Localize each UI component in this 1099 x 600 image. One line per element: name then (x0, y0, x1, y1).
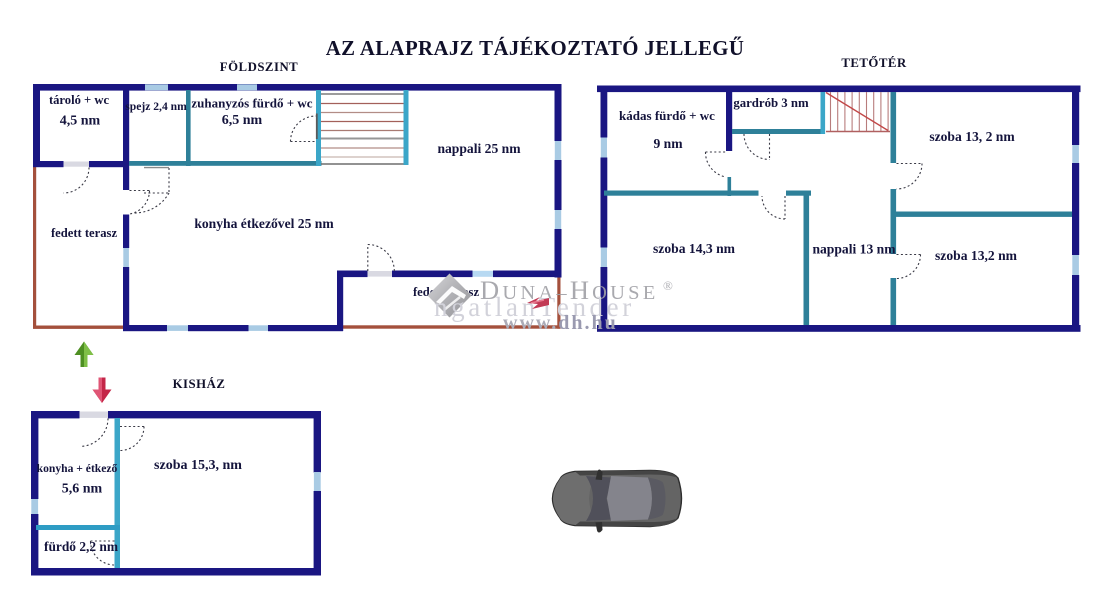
svg-text:4,5 nm: 4,5 nm (60, 114, 101, 129)
svg-text:konyha étkezővel 25 nm: konyha étkezővel 25 nm (194, 216, 334, 231)
svg-text:kádas fürdő + wc: kádas fürdő + wc (619, 108, 715, 123)
svg-text:zuhanyzós fürdő + wc: zuhanyzós fürdő + wc (191, 96, 312, 111)
svg-text:AZ ALAPRAJZ TÁJÉKOZTATÓ JELLEG: AZ ALAPRAJZ TÁJÉKOZTATÓ JELLEGŰ (326, 36, 745, 60)
svg-text:szoba 14,3 nm: szoba 14,3 nm (653, 241, 736, 256)
svg-text:9 nm: 9 nm (653, 136, 683, 151)
svg-text:konyha + étkező: konyha + étkező (37, 462, 118, 475)
svg-text:nappali 13 nm: nappali 13 nm (812, 242, 896, 257)
svg-text:www.dh.hu: www.dh.hu (503, 312, 618, 334)
svg-text:TETŐTÉR: TETŐTÉR (841, 55, 907, 70)
svg-text:KISHÁZ: KISHÁZ (173, 377, 226, 391)
svg-text:spejz 2,4 nm: spejz 2,4 nm (125, 100, 187, 113)
svg-text:gardrób 3 nm: gardrób 3 nm (733, 96, 809, 110)
svg-text:FÖLDSZINT: FÖLDSZINT (220, 60, 298, 74)
svg-text:tároló + wc: tároló + wc (49, 93, 110, 107)
svg-text:szoba 13,2 nm: szoba 13,2 nm (935, 248, 1018, 263)
svg-text:5,6 nm: 5,6 nm (62, 482, 103, 497)
svg-text:nappali 25 nm: nappali 25 nm (437, 141, 521, 156)
svg-text:szoba 15,3, nm: szoba 15,3, nm (154, 458, 242, 473)
svg-text:6,5 nm: 6,5 nm (222, 113, 263, 128)
svg-text:szoba 13, 2 nm: szoba 13, 2 nm (929, 129, 1015, 144)
svg-text:fürdő 2,2 nm: fürdő 2,2 nm (44, 539, 118, 554)
svg-text:®: ® (663, 278, 673, 293)
svg-text:fedett terasz: fedett terasz (51, 226, 117, 240)
